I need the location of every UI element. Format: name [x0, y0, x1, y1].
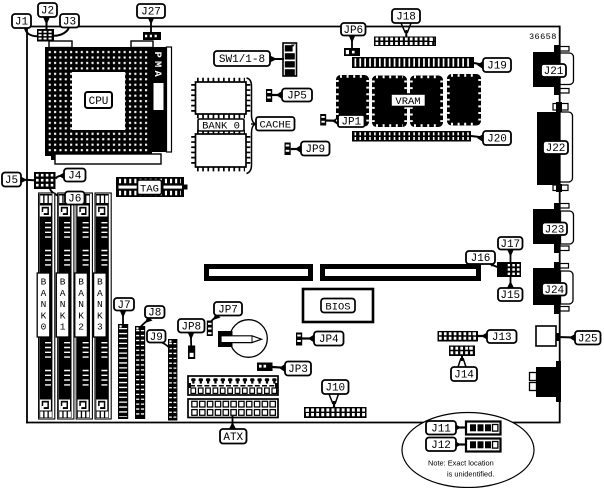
svg-text:JP1: JP1: [341, 117, 361, 129]
svg-text:J17: J17: [500, 239, 520, 251]
svg-text:N: N: [97, 299, 103, 310]
svg-text:J6: J6: [68, 194, 81, 206]
svg-text:J11: J11: [431, 423, 451, 435]
svg-text:J25: J25: [578, 333, 598, 345]
svg-text:N: N: [60, 299, 66, 310]
svg-text:SW1/1-8: SW1/1-8: [219, 54, 265, 66]
svg-text:ATX: ATX: [223, 432, 243, 444]
svg-text:1: 1: [60, 322, 66, 333]
svg-text:JP6: JP6: [343, 25, 363, 37]
svg-text:JP7: JP7: [218, 304, 238, 316]
svg-text:N: N: [41, 299, 47, 310]
svg-text:B: B: [41, 277, 47, 288]
svg-text:0: 0: [41, 322, 47, 333]
svg-text:J10: J10: [325, 383, 345, 395]
svg-text:K: K: [78, 310, 84, 321]
svg-text:B: B: [97, 277, 103, 288]
svg-text:J7: J7: [117, 300, 130, 312]
svg-text:J9: J9: [150, 332, 163, 344]
svg-text:JP4: JP4: [319, 334, 339, 346]
svg-text:K: K: [41, 310, 47, 321]
svg-text:J8: J8: [148, 308, 161, 320]
svg-text:J4: J4: [68, 171, 82, 183]
svg-text:J14: J14: [454, 370, 474, 382]
svg-text:J22: J22: [546, 143, 566, 155]
svg-text:K: K: [97, 310, 103, 321]
svg-text:J19: J19: [487, 61, 507, 73]
svg-text:BIOS: BIOS: [325, 302, 350, 314]
svg-text:2: 2: [78, 322, 84, 333]
svg-text:J15: J15: [500, 290, 520, 302]
svg-text:B: B: [78, 277, 84, 288]
svg-text:A: A: [60, 288, 66, 299]
svg-text:J20: J20: [487, 134, 507, 146]
svg-text:JP5: JP5: [287, 91, 307, 103]
svg-text:J5: J5: [5, 175, 18, 187]
svg-text:K: K: [60, 310, 66, 321]
svg-text:JP3: JP3: [288, 364, 308, 376]
svg-text:J24: J24: [544, 285, 564, 297]
svg-text:J13: J13: [492, 332, 512, 344]
svg-text:PMA: PMA: [151, 52, 163, 81]
svg-text:J12: J12: [431, 440, 451, 452]
svg-text:J27: J27: [141, 7, 161, 19]
svg-text:A: A: [41, 288, 47, 299]
svg-text:JP8: JP8: [181, 321, 201, 333]
svg-text:CACHE: CACHE: [259, 119, 291, 131]
svg-text:VRAM: VRAM: [395, 96, 420, 108]
svg-text:J2: J2: [41, 6, 54, 18]
svg-text:A: A: [97, 288, 103, 299]
svg-text:36658: 36658: [529, 32, 557, 42]
svg-text:CPU: CPU: [89, 96, 109, 108]
svg-text:N: N: [78, 299, 84, 310]
svg-text:BANK 0: BANK 0: [202, 121, 240, 133]
svg-text:is unidentified.: is unidentified.: [447, 470, 494, 479]
svg-text:Note: Exact location: Note: Exact location: [428, 459, 494, 468]
svg-text:J18: J18: [396, 12, 416, 24]
svg-text:B: B: [60, 277, 66, 288]
svg-text:J23: J23: [545, 224, 565, 236]
svg-text:J21: J21: [544, 66, 564, 78]
svg-text:J3: J3: [63, 16, 76, 28]
svg-text:3: 3: [97, 322, 103, 333]
svg-text:J1: J1: [15, 17, 29, 29]
svg-text:TAG: TAG: [140, 184, 159, 196]
svg-text:J16: J16: [471, 253, 491, 265]
svg-text:JP9: JP9: [305, 144, 325, 156]
svg-text:A: A: [78, 288, 84, 299]
